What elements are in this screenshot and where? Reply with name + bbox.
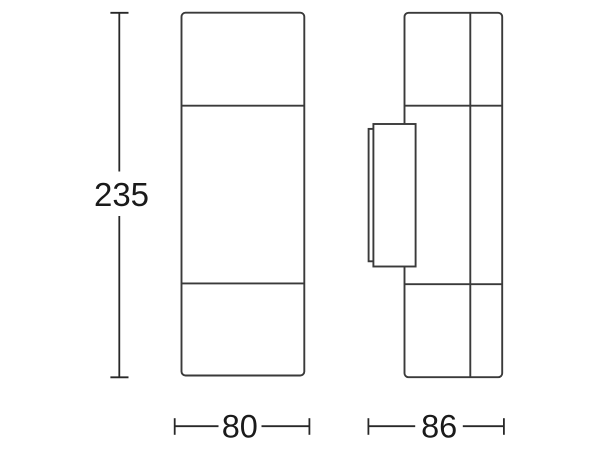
svg-text:80: 80 (222, 408, 258, 444)
svg-text:235: 235 (94, 176, 149, 213)
svg-text:86: 86 (421, 408, 457, 444)
